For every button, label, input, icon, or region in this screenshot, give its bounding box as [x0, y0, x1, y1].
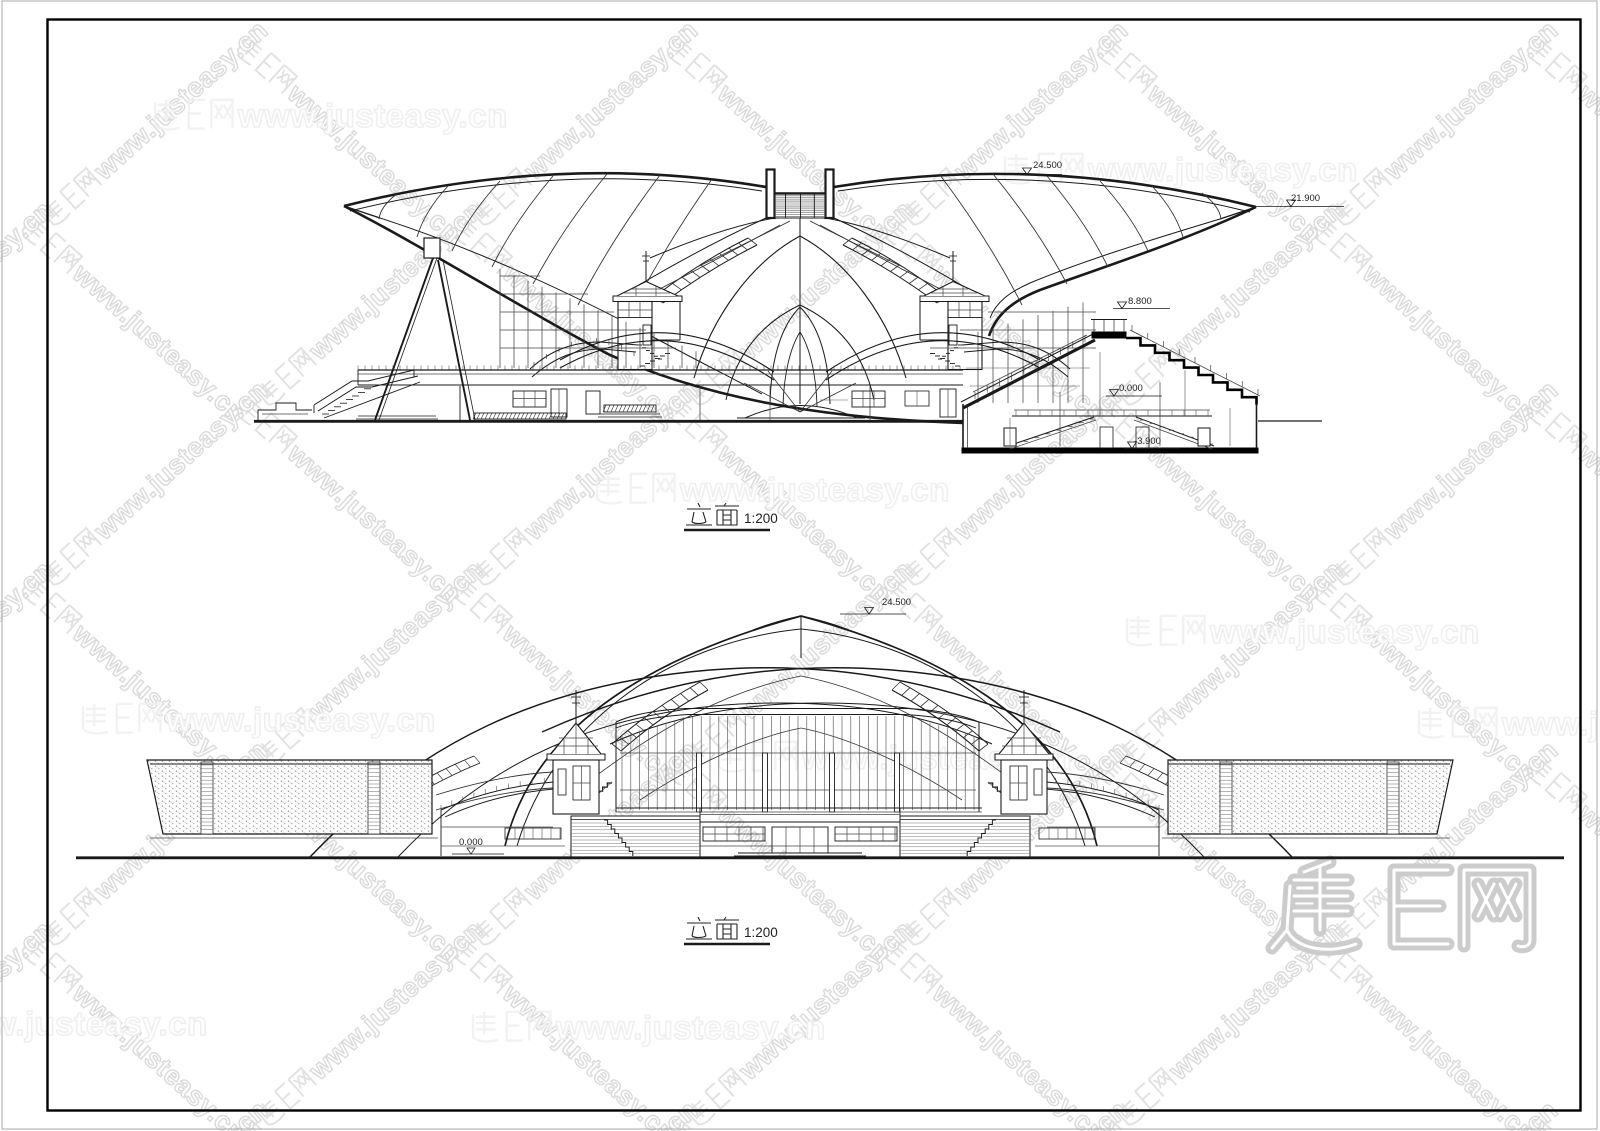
svg-text:8.800: 8.800	[1128, 296, 1152, 307]
svg-text:1:200: 1:200	[744, 925, 778, 940]
svg-text:21.900: 21.900	[1291, 193, 1320, 204]
svg-text:-3.900: -3.900	[1134, 436, 1161, 447]
svg-text:24.500: 24.500	[882, 597, 911, 608]
svg-text:1:200: 1:200	[744, 511, 778, 526]
svg-text:24.500: 24.500	[1033, 160, 1062, 171]
svg-text:0.000: 0.000	[1119, 383, 1143, 394]
svg-text:0.000: 0.000	[459, 837, 483, 848]
